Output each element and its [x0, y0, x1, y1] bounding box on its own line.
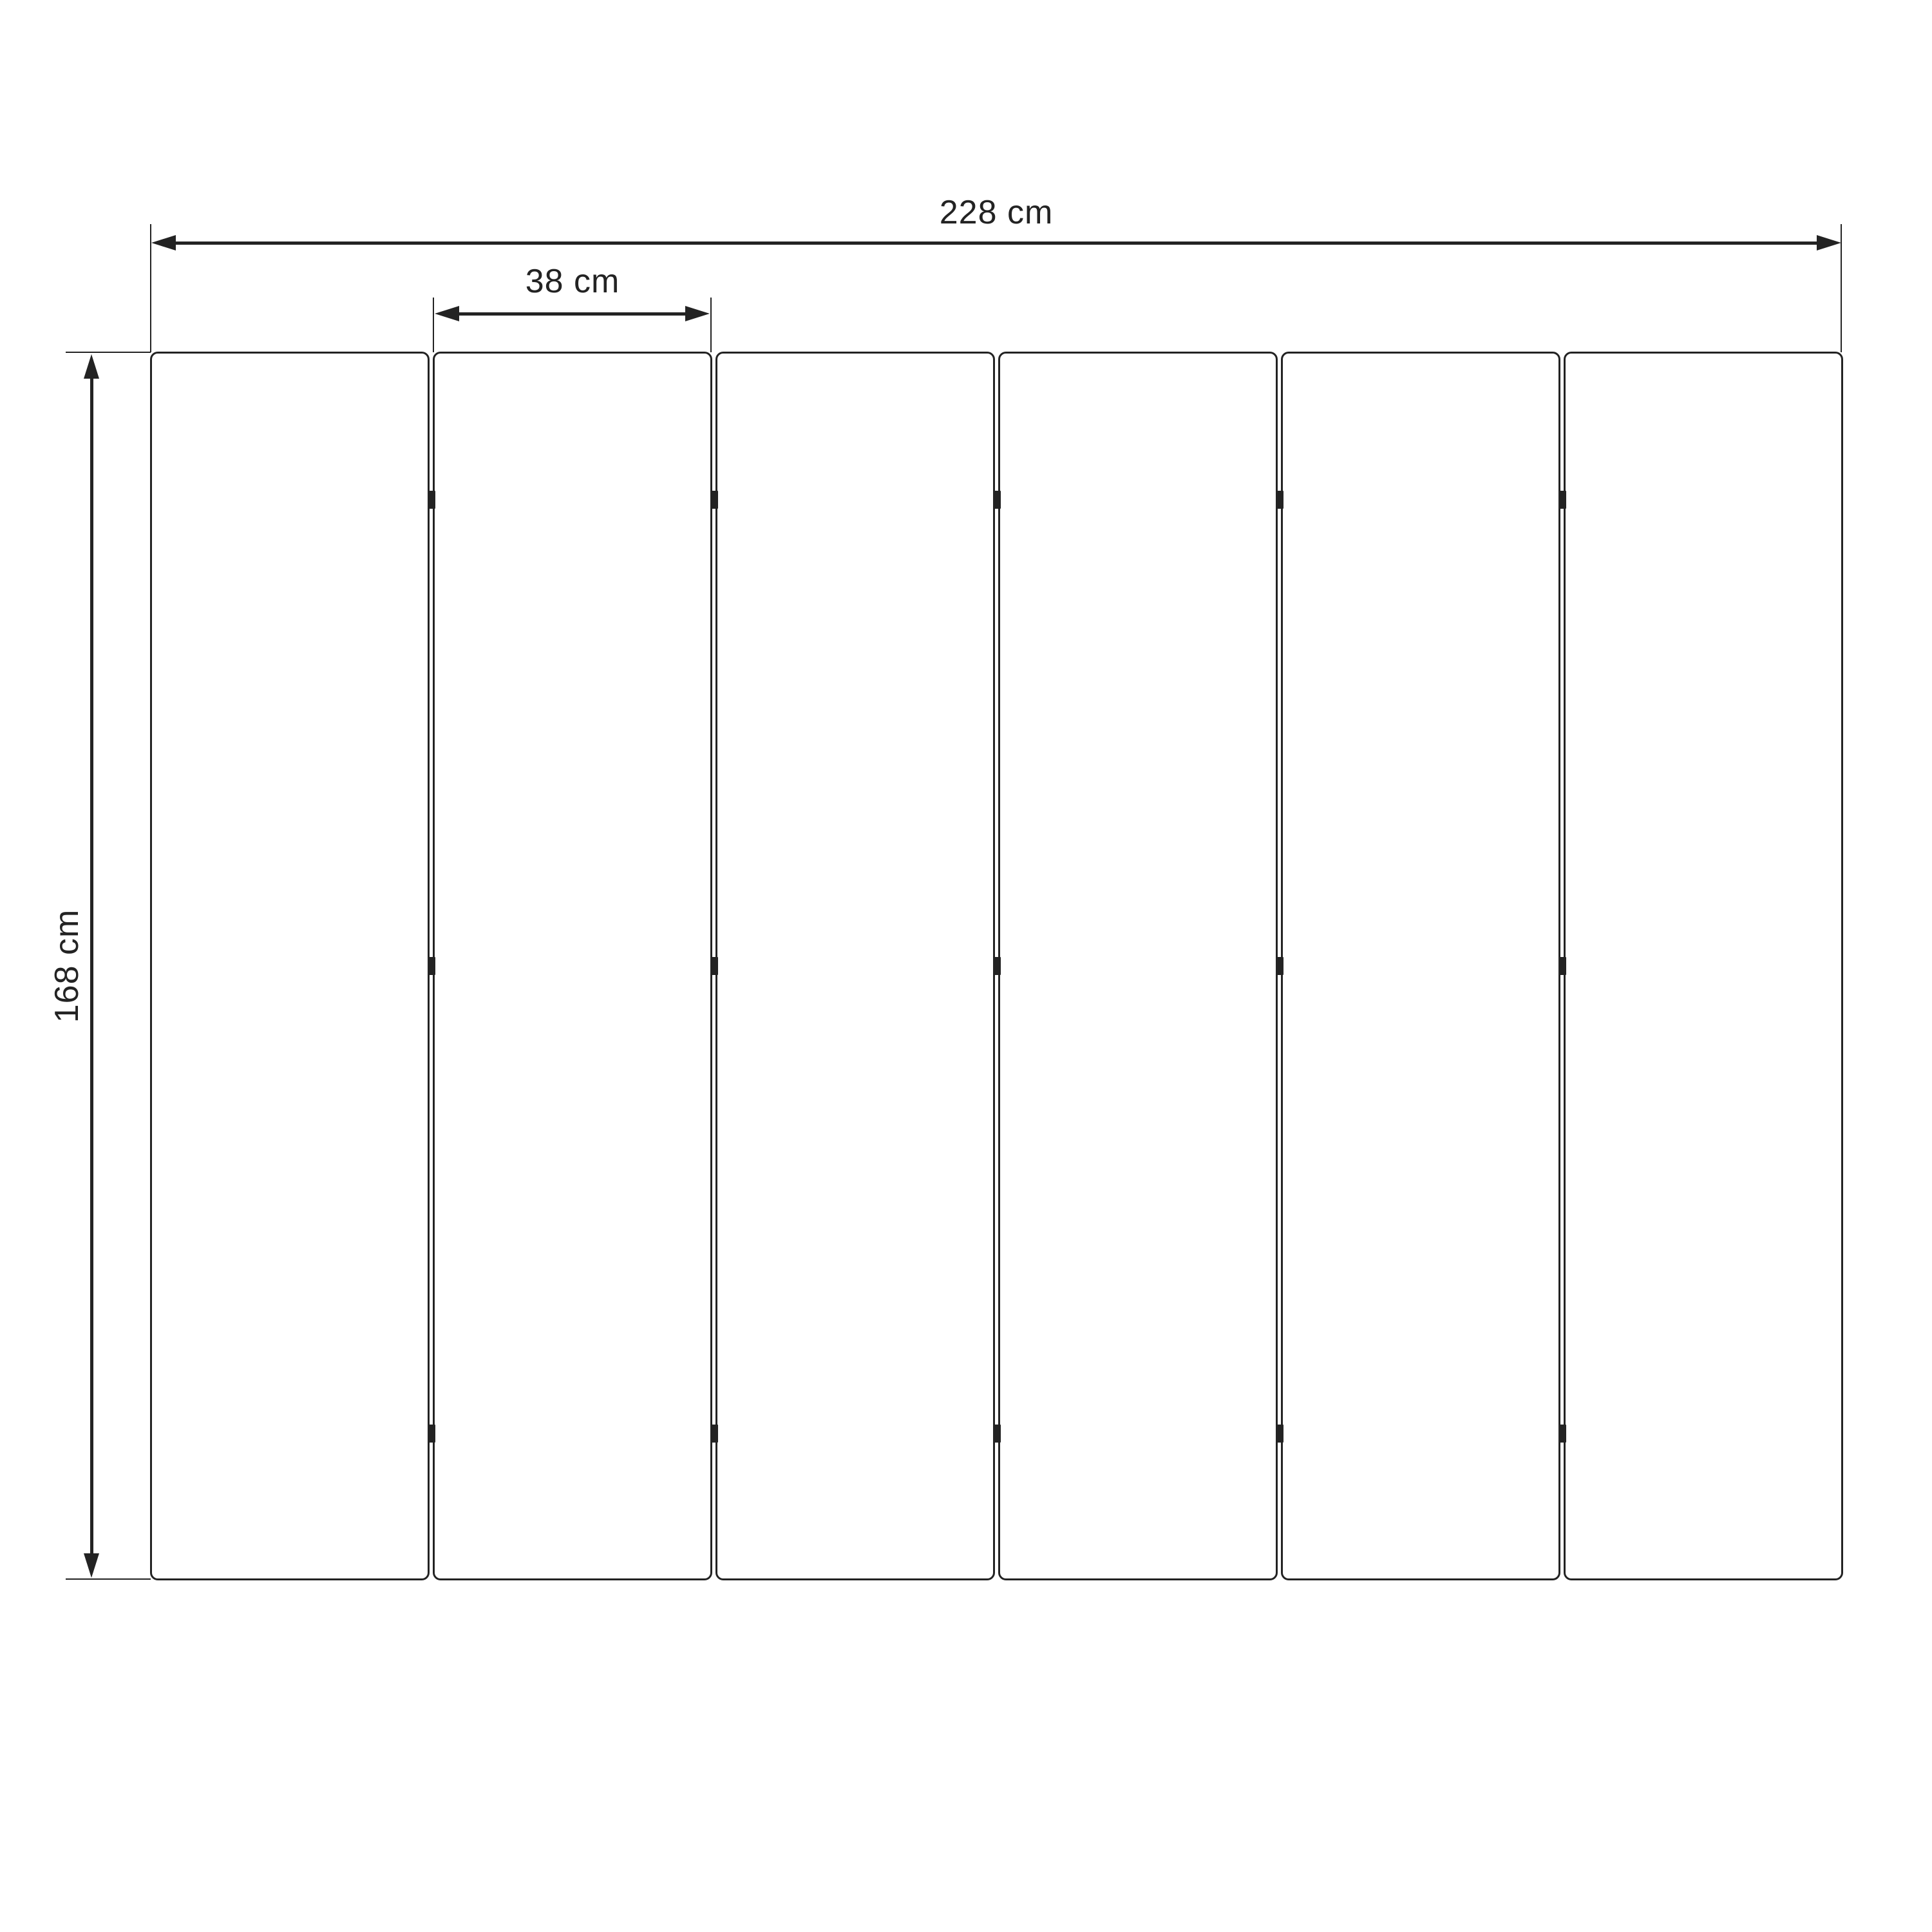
hinge [1276, 491, 1283, 509]
hinge [1558, 957, 1566, 975]
dimension-height-label: 168 cm [50, 909, 84, 1023]
extension-line [433, 298, 434, 352]
hinge [1276, 1425, 1283, 1443]
hinge [993, 1425, 1001, 1443]
diagram-canvas: 228 cm 38 cm 168 cm [0, 0, 1932, 1932]
extension-line [66, 352, 151, 353]
hinge [993, 491, 1001, 509]
panel-5 [1281, 352, 1560, 1580]
dimension-line [90, 376, 93, 1556]
hinge [710, 491, 718, 509]
arrow-up-icon [84, 354, 99, 379]
hinge [1558, 1425, 1566, 1443]
dimension-total-width-label: 228 cm [940, 196, 1054, 229]
arrow-left-icon [151, 235, 176, 251]
dimension-panel-width-label: 38 cm [526, 265, 620, 298]
panel-2 [433, 352, 712, 1580]
arrow-left-icon [435, 306, 459, 321]
arrow-right-icon [1817, 235, 1841, 251]
hinge [993, 957, 1001, 975]
panel-3 [715, 352, 995, 1580]
hinge [428, 1425, 435, 1443]
hinge [428, 957, 435, 975]
hinge [1558, 491, 1566, 509]
hinge [710, 1425, 718, 1443]
dimension-line [457, 312, 687, 316]
panel-1 [150, 352, 430, 1580]
panel-6 [1564, 352, 1843, 1580]
dimension-line [173, 241, 1819, 245]
extension-line [710, 298, 712, 352]
arrow-right-icon [685, 306, 710, 321]
panel-4 [998, 352, 1278, 1580]
hinge [1276, 957, 1283, 975]
extension-line [66, 1578, 151, 1580]
arrow-down-icon [84, 1553, 99, 1578]
hinge [710, 957, 718, 975]
hinge [428, 491, 435, 509]
